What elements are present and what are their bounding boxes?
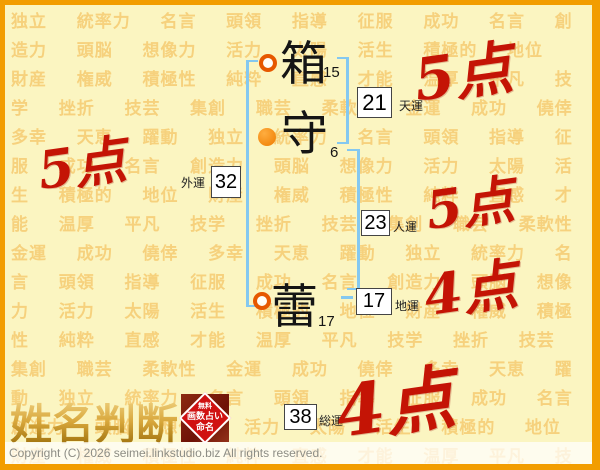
total-luck-score: 4点 [332,362,459,448]
seimei-handan-result-page: 独立 統率力 名言 頭領 指導 征服 成功 名言 創造力 頭脳 想像力 活力 太… [0,0,600,470]
total-luck-value-box: 38 [284,404,317,430]
heaven-luck-score: 5点 [410,38,515,109]
name-char-3-strokes: 17 [318,313,335,330]
badge-line-3: 命名 [196,422,214,433]
outer-luck-label: 外運 [181,174,205,191]
name-char-2: 守 [281,110,328,157]
badge-text: 無料 画数占い 命名 [181,394,229,442]
outer-luck-score: 5点 [35,134,130,198]
heaven-luck-value-box: 21 [357,87,392,118]
earth-luck-label: 地運 [395,297,419,314]
badge-line-2: 画数占い [187,411,223,422]
name-char-3: 蕾 [271,283,318,330]
earth-luck-value-box: 17 [356,288,392,315]
free-naming-badge[interactable]: 無料 画数占い 命名 [181,394,229,442]
givenname-char-ring-icon [253,292,271,310]
earth-luck-tick [341,296,353,299]
outer-luck-bracket [246,60,258,307]
earth-luck-score: 4点 [421,256,521,323]
name-char-1-strokes: 15 [323,64,340,81]
copyright-text: Copyright (C) 2026 seimei.linkstudio.biz… [9,446,322,460]
surname-char2-dot-icon [258,128,276,146]
person-luck-label: 人運 [393,218,417,235]
surname-char1-ring-icon [259,54,277,72]
name-char-1: 箱 [280,40,327,87]
name-char-2-strokes: 6 [330,144,338,161]
person-luck-bracket [347,149,360,290]
person-luck-score: 5点 [423,174,518,238]
outer-luck-value-box: 32 [211,166,241,198]
person-luck-value-box: 23 [361,210,390,236]
